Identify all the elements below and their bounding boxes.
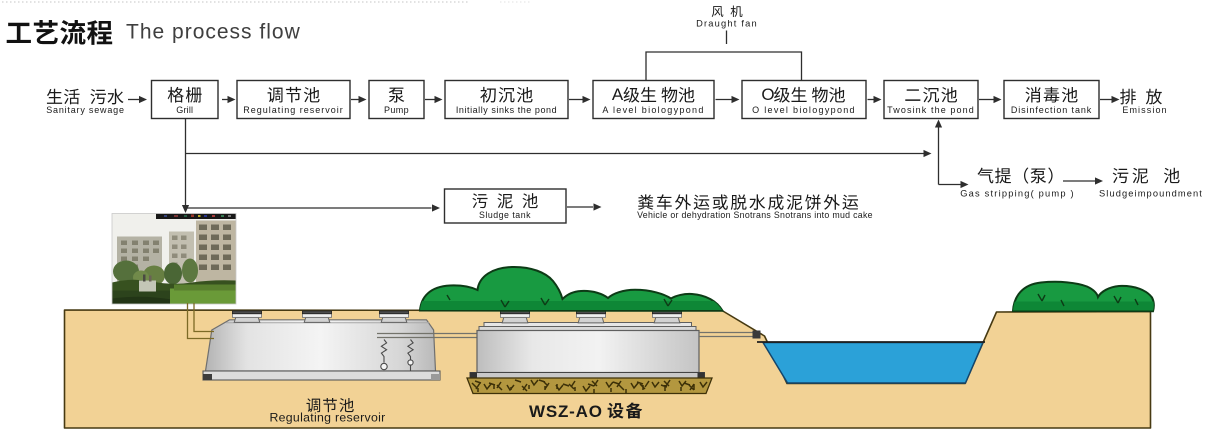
svg-text:The process flow: The process flow — [126, 21, 301, 44]
svg-text:Grill: Grill — [176, 105, 193, 115]
svg-text:Pump: Pump — [384, 105, 409, 115]
svg-text:A: A — [612, 85, 624, 104]
svg-text:Draught fan: Draught fan — [696, 19, 758, 29]
svg-text:Sludge tank: Sludge tank — [479, 210, 531, 220]
svg-text:Sanitary sewage: Sanitary sewage — [46, 105, 125, 115]
svg-text:A level biologypond: A level biologypond — [602, 105, 704, 115]
svg-text:Initially sinks the pond: Initially sinks the pond — [456, 105, 557, 115]
svg-text:Disinfection tank: Disinfection tank — [1011, 105, 1092, 115]
svg-text:Twosink the pond: Twosink the pond — [887, 105, 975, 115]
svg-text:Vehicle or dehydration Snotran: Vehicle or dehydration Snotrans Snotrans… — [637, 210, 873, 220]
svg-text:WSZ-AO: WSZ-AO — [529, 402, 603, 421]
svg-text:O level biologypond: O level biologypond — [752, 105, 856, 115]
svg-text:Sludgeimpoundment: Sludgeimpoundment — [1099, 189, 1203, 199]
svg-text:Emission: Emission — [1122, 105, 1167, 115]
svg-text:Regulating reservoir: Regulating reservoir — [243, 105, 344, 115]
svg-text:Regulating reservoir: Regulating reservoir — [269, 411, 385, 425]
svg-text:O: O — [761, 85, 774, 104]
svg-text:Gas stripping( pump ): Gas stripping( pump ) — [960, 189, 1075, 199]
